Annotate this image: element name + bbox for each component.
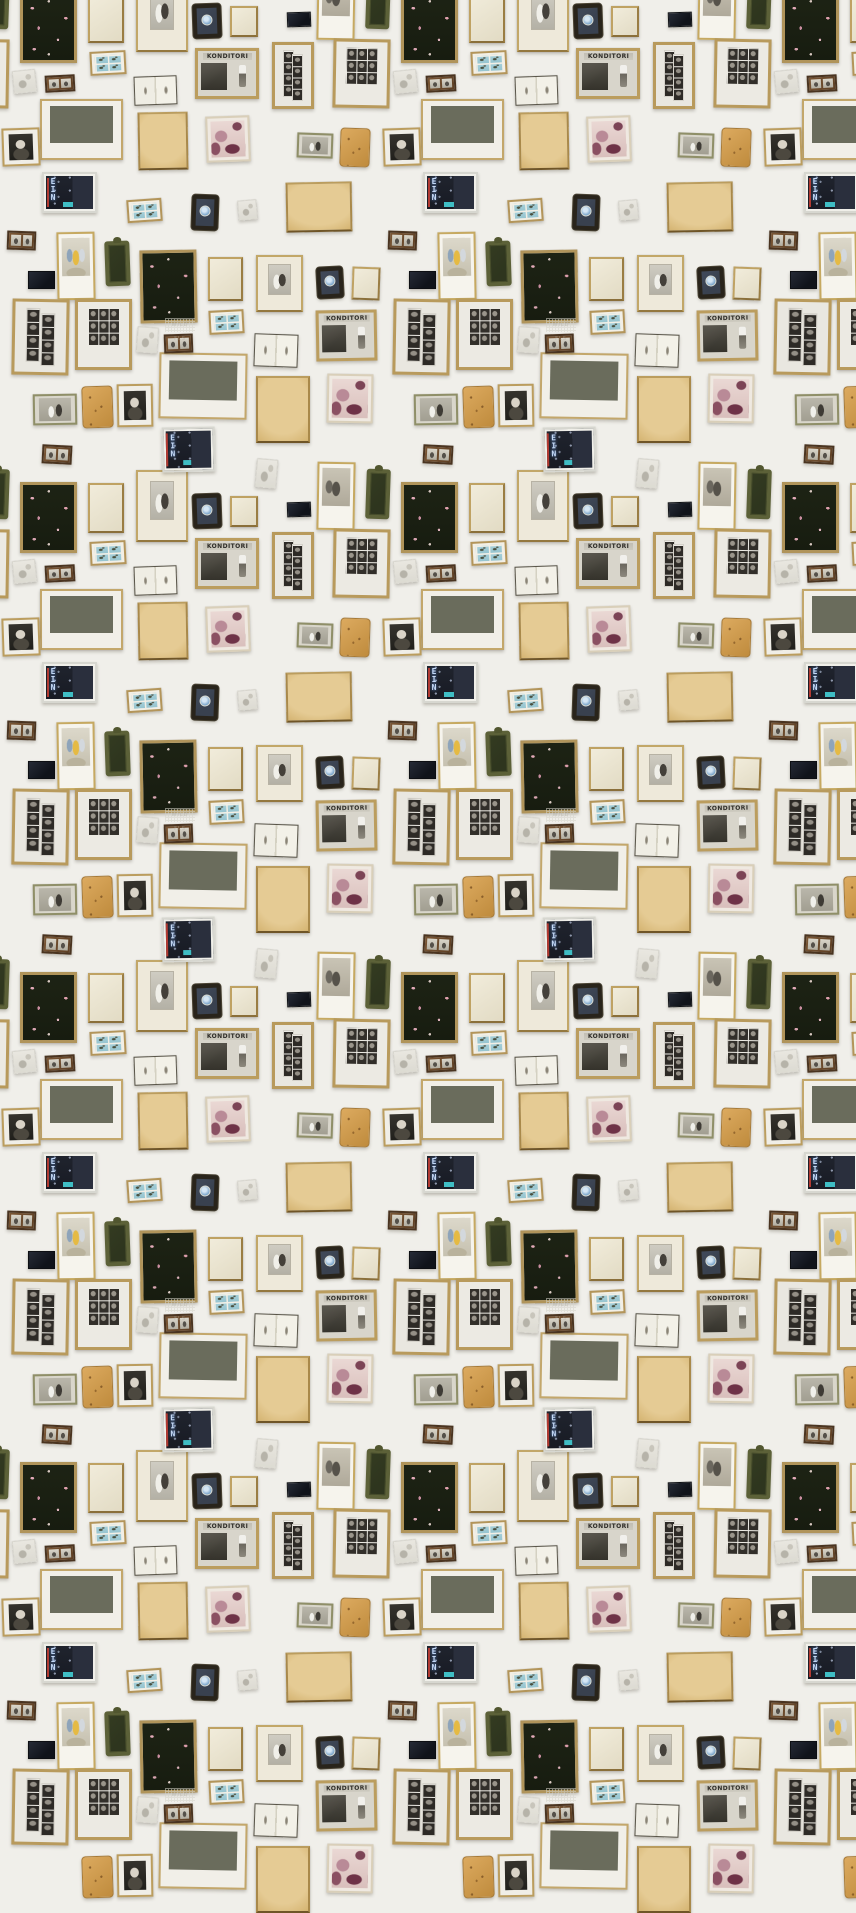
frame-tiny-faint <box>774 1049 799 1074</box>
frame-tiny-faint <box>255 458 278 489</box>
frame-tan-notebook <box>462 1365 494 1408</box>
frame-navy-rect <box>790 1741 817 1759</box>
frame-stamps <box>589 1779 625 1805</box>
frame-tiny-faint <box>12 69 37 94</box>
frame-cream-blank <box>732 267 761 301</box>
ein-neon-label: EIN <box>432 178 441 202</box>
frame-badge-ornate <box>573 494 602 529</box>
frame-city-photo <box>539 842 628 910</box>
frame-photo-strips <box>11 789 69 866</box>
frame-konditori: KONDITORI <box>697 1779 759 1831</box>
frame-konditori: KONDITORI <box>316 1289 378 1341</box>
frame-badge-ornate <box>316 266 344 298</box>
frame-navy-rect <box>668 502 693 518</box>
frame-brown-duo <box>426 1544 457 1563</box>
frame-faint-note: WILD FLS <box>546 1298 576 1312</box>
frame-stamps <box>208 1289 244 1315</box>
frame-brown-duo <box>7 1700 37 1720</box>
frame-photo-grid <box>837 1279 856 1350</box>
frame-tiny-faint <box>136 816 159 843</box>
ein-neon-label: EIN <box>51 1158 60 1182</box>
frame-brown-duo <box>423 444 454 465</box>
frame-laughing-woman <box>498 384 535 428</box>
frame-laughing-woman <box>498 1364 535 1408</box>
frame-brown-duo <box>426 1054 457 1073</box>
frame-photo-grid <box>713 529 771 599</box>
frame-brown-duo <box>7 720 37 740</box>
frame-photo-grid <box>0 39 10 109</box>
frame-cream-blank <box>351 1737 380 1771</box>
frame-photo-grid <box>456 299 513 370</box>
ein-neon-label: EIN <box>813 1158 822 1182</box>
frame-olive-ornate <box>0 1449 10 1500</box>
frame-photo-strips <box>773 1279 831 1356</box>
frame-stamps <box>507 1178 544 1203</box>
frame-ein-neon: EIN <box>162 427 216 473</box>
frame-open-book <box>253 1313 298 1348</box>
frame-laughing-woman <box>498 1854 535 1898</box>
frame-pink-photo <box>327 374 374 424</box>
frame-faint-note: WILD FLS <box>165 1298 195 1312</box>
konditori-label: KONDITORI <box>584 543 633 550</box>
frame-couple-photo <box>297 1602 334 1628</box>
frame-tiny-faint <box>237 1669 258 1691</box>
frame-brown-duo <box>769 230 799 250</box>
frame-city-photo <box>158 1332 247 1400</box>
frame-badge-ornate <box>697 756 725 788</box>
frame-cream-blank <box>230 496 258 527</box>
frame-polaroid-color <box>818 232 856 301</box>
frame-laughing-woman <box>763 1597 802 1636</box>
frame-tiny-faint <box>774 1539 799 1564</box>
frame-city-photo <box>421 589 504 650</box>
frame-stamps <box>507 688 544 713</box>
frame-couple-photo <box>795 394 840 426</box>
frame-stamps <box>589 799 625 825</box>
frame-navy-rect <box>287 992 312 1008</box>
frame-cream-blank <box>732 757 761 791</box>
frame-couple-photo <box>297 1112 334 1138</box>
frame-brown-duo <box>807 1544 838 1563</box>
frame-dark-floral <box>401 1462 458 1533</box>
frame-city-photo <box>421 99 504 160</box>
frame-ein-neon: EIN <box>804 662 856 703</box>
frame-ein-neon: EIN <box>423 1152 478 1193</box>
frame-pink-photo <box>586 1095 632 1143</box>
frame-photo-strips <box>773 789 831 866</box>
frame-badge-ornate <box>192 4 221 39</box>
frame-pink-photo <box>205 115 251 163</box>
frame-laughing-woman <box>117 1364 154 1408</box>
frame-tiny-faint <box>618 1669 639 1691</box>
frame-tan-notebook <box>81 1365 113 1408</box>
frame-open-book <box>134 565 178 595</box>
frame-big-tan <box>667 1161 734 1212</box>
frame-dark-floral <box>20 0 77 63</box>
frame-navy-rect <box>409 1251 436 1269</box>
frame-konditori: KONDITORI <box>195 48 259 99</box>
frame-tiny-faint <box>136 326 159 353</box>
frame-faint-note: WILD FLS <box>546 1788 576 1802</box>
frame-couple-photo <box>414 394 459 426</box>
frame-badge-ornate <box>316 1246 344 1278</box>
frame-laughing-woman <box>1 1107 40 1146</box>
frame-laughing-woman <box>498 874 535 918</box>
frame-tiny-faint <box>618 1179 639 1201</box>
frame-olive-ornate <box>365 959 391 1010</box>
frame-tan-notebook <box>720 127 751 167</box>
frame-cream-blank <box>208 257 243 301</box>
frame-open-book <box>515 1055 559 1085</box>
konditori-label: KONDITORI <box>705 1295 751 1303</box>
frame-photo-grid <box>713 1019 771 1089</box>
frame-olive-ornate <box>485 241 512 287</box>
frame-dark-floral <box>782 1462 839 1533</box>
frame-city-photo <box>40 99 123 160</box>
frame-dark-floral <box>20 482 77 553</box>
frame-cream-blank <box>850 483 856 533</box>
frame-photo-strips <box>653 1022 695 1089</box>
frame-polaroid-bw <box>697 0 736 40</box>
frame-photo-grid <box>75 1279 132 1350</box>
frame-laughing-woman <box>382 617 421 656</box>
frame-konditori: KONDITORI <box>316 309 378 361</box>
frame-open-book <box>515 1545 559 1575</box>
frame-brown-duo <box>388 720 418 740</box>
frame-brown-duo <box>769 1210 799 1230</box>
frame-photo-strips <box>11 1769 69 1846</box>
frame-dark-floral <box>520 740 578 814</box>
frame-dark-floral <box>520 250 578 324</box>
frame-polaroid-color <box>437 1212 476 1281</box>
frame-badge-ornate <box>697 266 725 298</box>
frame-pink-photo <box>586 605 632 653</box>
frame-olive-ornate <box>365 469 391 520</box>
frame-ein-neon: EIN <box>423 172 478 213</box>
frame-badge-ornate <box>697 1736 725 1768</box>
frame-olive-ornate <box>104 1221 131 1267</box>
frame-stamps <box>89 1520 126 1546</box>
frame-ein-neon: EIN <box>543 1407 597 1453</box>
frame-pink-photo <box>205 1095 251 1143</box>
frame-big-tan <box>637 1846 691 1913</box>
faint-note-label: WILD FLS <box>165 808 195 822</box>
frame-photo-grid <box>456 1279 513 1350</box>
frame-polaroid-color <box>818 722 856 791</box>
ein-neon-label: EIN <box>551 1414 560 1438</box>
frame-cream-blank <box>589 1727 624 1771</box>
frame-stamps <box>126 1178 163 1203</box>
frame-ein-neon: EIN <box>543 427 597 473</box>
frame-olive-ornate <box>104 241 131 287</box>
ein-neon-label: EIN <box>813 178 822 202</box>
frame-open-book <box>134 1055 178 1085</box>
frame-pink-photo <box>586 115 632 163</box>
frame-stamps <box>507 1668 544 1693</box>
konditori-label: KONDITORI <box>705 1785 751 1793</box>
konditori-label: KONDITORI <box>203 1033 252 1040</box>
frame-olive-ornate <box>104 1711 131 1757</box>
frame-polaroid-color <box>56 1212 95 1281</box>
frame-big-tan <box>667 181 734 232</box>
frame-badge-ornate <box>316 1736 344 1768</box>
frame-cream-blank <box>850 0 856 43</box>
frame-konditori: KONDITORI <box>576 1028 640 1079</box>
frame-laughing-woman <box>1 1597 40 1636</box>
frame-polaroid-color <box>56 722 95 791</box>
frame-city-photo <box>421 1569 504 1630</box>
frame-photo-grid <box>456 789 513 860</box>
frame-cream-blank <box>469 483 505 533</box>
frame-olive-ornate <box>746 1449 772 1500</box>
frame-ein-neon: EIN <box>804 172 856 213</box>
frame-photo-grid <box>837 1769 856 1840</box>
frame-city-photo <box>158 352 247 420</box>
frame-ein-neon: EIN <box>42 172 97 213</box>
frame-navy-rect <box>409 761 436 779</box>
frame-cream-blank <box>230 6 258 37</box>
frame-cream-blank <box>611 496 639 527</box>
frame-tan-book <box>518 602 569 661</box>
frame-wedding <box>637 745 684 802</box>
frame-photo-grid <box>0 1509 10 1579</box>
frame-stamps <box>851 50 856 76</box>
frame-polaroid-color <box>56 232 95 301</box>
frame-open-book <box>634 333 679 368</box>
frame-olive-ornate <box>104 731 131 777</box>
frame-polaroid-bw <box>316 0 355 40</box>
frame-tiny-faint <box>636 948 659 979</box>
ein-neon-label: EIN <box>813 1648 822 1672</box>
frame-tiny-faint <box>636 1438 659 1469</box>
frame-tan-notebook <box>843 875 856 918</box>
frame-tiny-faint <box>517 326 540 353</box>
frame-city-photo <box>802 589 856 650</box>
frame-tan-notebook <box>81 875 113 918</box>
frame-cream-blank <box>589 257 624 301</box>
frame-tiny-faint <box>136 1306 159 1333</box>
frame-tan-book <box>137 112 188 171</box>
wallpaper-swatch: { "pattern": { "canvas": {"width": 856, … <box>0 0 856 1856</box>
ein-neon-label: EIN <box>51 178 60 202</box>
frame-polaroid-color <box>437 1702 476 1771</box>
frame-photo-strips <box>272 1512 314 1579</box>
frame-laughing-woman <box>1 127 40 166</box>
frame-couple-photo <box>414 1374 459 1406</box>
frame-konditori: KONDITORI <box>697 799 759 851</box>
frame-polaroid-bw <box>697 462 736 531</box>
frame-photo-grid <box>332 39 390 109</box>
frame-stamps <box>208 1779 244 1805</box>
frame-big-tan <box>637 376 691 443</box>
frame-couple-photo <box>33 884 78 916</box>
frame-dark-floral <box>401 972 458 1043</box>
frame-city-photo <box>539 352 628 420</box>
frame-tiny-faint <box>393 559 418 584</box>
frame-city-photo <box>40 1569 123 1630</box>
frame-badge-ornate <box>572 685 599 721</box>
frame-dark-floral <box>139 1230 197 1304</box>
frame-wedding <box>256 745 303 802</box>
frame-tiny-faint <box>517 1306 540 1333</box>
frame-dark-floral <box>520 1230 578 1304</box>
frame-tan-book <box>518 1582 569 1641</box>
frame-dark-floral <box>139 250 197 324</box>
frame-cream-blank <box>230 986 258 1017</box>
frame-stamps <box>589 309 625 335</box>
frame-photo-strips <box>653 1512 695 1579</box>
frame-brown-duo <box>7 1210 37 1230</box>
frame-brown-duo <box>807 564 838 583</box>
frame-city-photo <box>539 1332 628 1400</box>
frame-brown-duo <box>45 74 76 93</box>
frame-dark-floral <box>782 482 839 553</box>
frame-brown-duo <box>804 934 835 955</box>
frame-couple-photo <box>297 622 334 648</box>
frame-cream-blank <box>208 1727 243 1771</box>
frame-stamps <box>470 1030 507 1056</box>
frame-tan-notebook <box>843 1365 856 1408</box>
konditori-label: KONDITORI <box>203 1523 252 1530</box>
frame-dark-floral <box>401 482 458 553</box>
frame-tan-book <box>518 112 569 171</box>
frame-polaroid-color <box>818 1702 856 1771</box>
frame-brown-duo <box>42 444 73 465</box>
frame-tiny-faint <box>393 1539 418 1564</box>
frame-laughing-woman <box>382 127 421 166</box>
frame-badge-ornate <box>192 494 221 529</box>
frame-olive-ornate <box>485 731 512 777</box>
frame-big-tan <box>667 1651 734 1702</box>
frame-cream-blank <box>469 0 505 43</box>
frame-wedding <box>637 255 684 312</box>
frame-couple-photo <box>678 132 715 158</box>
frame-navy-rect <box>287 1482 312 1498</box>
faint-note-label: WILD FLS <box>546 808 576 822</box>
frame-stamps <box>208 799 244 825</box>
frame-laughing-woman <box>763 617 802 656</box>
konditori-label: KONDITORI <box>584 1523 633 1530</box>
frame-brown-duo <box>769 1700 799 1720</box>
frame-konditori: KONDITORI <box>195 1518 259 1569</box>
konditori-label: KONDITORI <box>203 53 252 60</box>
frame-olive-ornate <box>485 1711 512 1757</box>
frame-photo-grid <box>837 299 856 370</box>
frame-open-book <box>634 1313 679 1348</box>
ein-neon-label: EIN <box>51 1648 60 1672</box>
frame-dark-floral <box>782 972 839 1043</box>
frame-laughing-woman <box>117 874 154 918</box>
frame-tiny-faint <box>12 559 37 584</box>
frame-olive-ornate <box>0 0 10 29</box>
frame-badge-ornate <box>192 984 221 1019</box>
ein-neon-label: EIN <box>170 434 179 458</box>
frame-big-tan <box>637 1356 691 1423</box>
frame-open-book <box>515 75 559 105</box>
frame-ein-neon: EIN <box>42 1642 97 1683</box>
frame-brown-duo <box>423 934 454 955</box>
frame-konditori: KONDITORI <box>316 1779 378 1831</box>
frame-stamps <box>589 1289 625 1315</box>
frame-wedding <box>517 1450 569 1522</box>
frame-photo-grid <box>332 1509 390 1579</box>
frame-polaroid-color <box>818 1212 856 1281</box>
frame-photo-strips <box>272 1022 314 1089</box>
konditori-label: KONDITORI <box>705 805 751 813</box>
frame-photo-strips <box>392 1279 450 1356</box>
frame-dark-floral <box>20 972 77 1043</box>
frame-tan-notebook <box>339 617 370 657</box>
frame-stamps <box>126 198 163 223</box>
frame-tiny-faint <box>237 689 258 711</box>
frame-dark-floral <box>139 740 197 814</box>
frame-olive-ornate <box>0 959 10 1010</box>
frame-badge-ornate <box>316 756 344 788</box>
faint-note-label: WILD FLS <box>165 318 195 332</box>
frame-cream-blank <box>208 1237 243 1281</box>
frame-tiny-faint <box>517 1796 540 1823</box>
frame-ein-neon: EIN <box>804 1642 856 1683</box>
frame-big-tan <box>256 866 310 933</box>
frame-navy-rect <box>28 1741 55 1759</box>
frame-polaroid-bw <box>316 1442 355 1511</box>
frame-wedding <box>637 1725 684 1782</box>
frame-cream-blank <box>469 973 505 1023</box>
ein-neon-label: EIN <box>551 434 560 458</box>
frame-badge-ornate <box>192 1474 221 1509</box>
frame-couple-photo <box>678 1112 715 1138</box>
frame-photo-strips <box>773 299 831 376</box>
frame-brown-duo <box>423 1424 454 1445</box>
frame-pink-photo <box>205 605 251 653</box>
frame-olive-ornate <box>0 469 10 520</box>
frame-cream-blank <box>208 747 243 791</box>
frame-cream-blank <box>230 1476 258 1507</box>
frame-badge-ornate <box>573 4 602 39</box>
frame-navy-rect <box>668 12 693 28</box>
frame-badge-ornate <box>572 195 599 231</box>
frame-brown-duo <box>45 1544 76 1563</box>
frame-ein-neon: EIN <box>423 662 478 703</box>
frame-open-book <box>134 75 178 105</box>
ein-neon-label: EIN <box>432 1158 441 1182</box>
frame-stamps <box>470 540 507 566</box>
frame-dark-floral <box>520 1720 578 1794</box>
frame-photo-grid <box>332 1019 390 1089</box>
frame-tan-notebook <box>81 1855 113 1898</box>
frame-navy-rect <box>790 1251 817 1269</box>
frame-cream-blank <box>732 1247 761 1281</box>
frame-badge-ornate <box>572 1175 599 1211</box>
frame-dark-floral <box>20 1462 77 1533</box>
frame-city-photo <box>158 1822 247 1890</box>
frame-olive-ornate <box>365 1449 391 1500</box>
frame-polaroid-color <box>437 722 476 791</box>
frame-cream-blank <box>589 1237 624 1281</box>
frame-city-photo <box>539 1822 628 1890</box>
frame-tiny-faint <box>618 689 639 711</box>
frame-pink-photo <box>708 1844 755 1894</box>
frame-faint-note: WILD FLS <box>165 808 195 822</box>
konditori-label: KONDITORI <box>324 805 370 813</box>
frame-tiny-faint <box>393 69 418 94</box>
frame-tan-book <box>137 602 188 661</box>
frame-polaroid-bw <box>697 1442 736 1511</box>
frame-badge-ornate <box>573 1474 602 1509</box>
frame-tan-notebook <box>339 127 370 167</box>
frame-couple-photo <box>678 1602 715 1628</box>
frame-photo-grid <box>75 789 132 860</box>
